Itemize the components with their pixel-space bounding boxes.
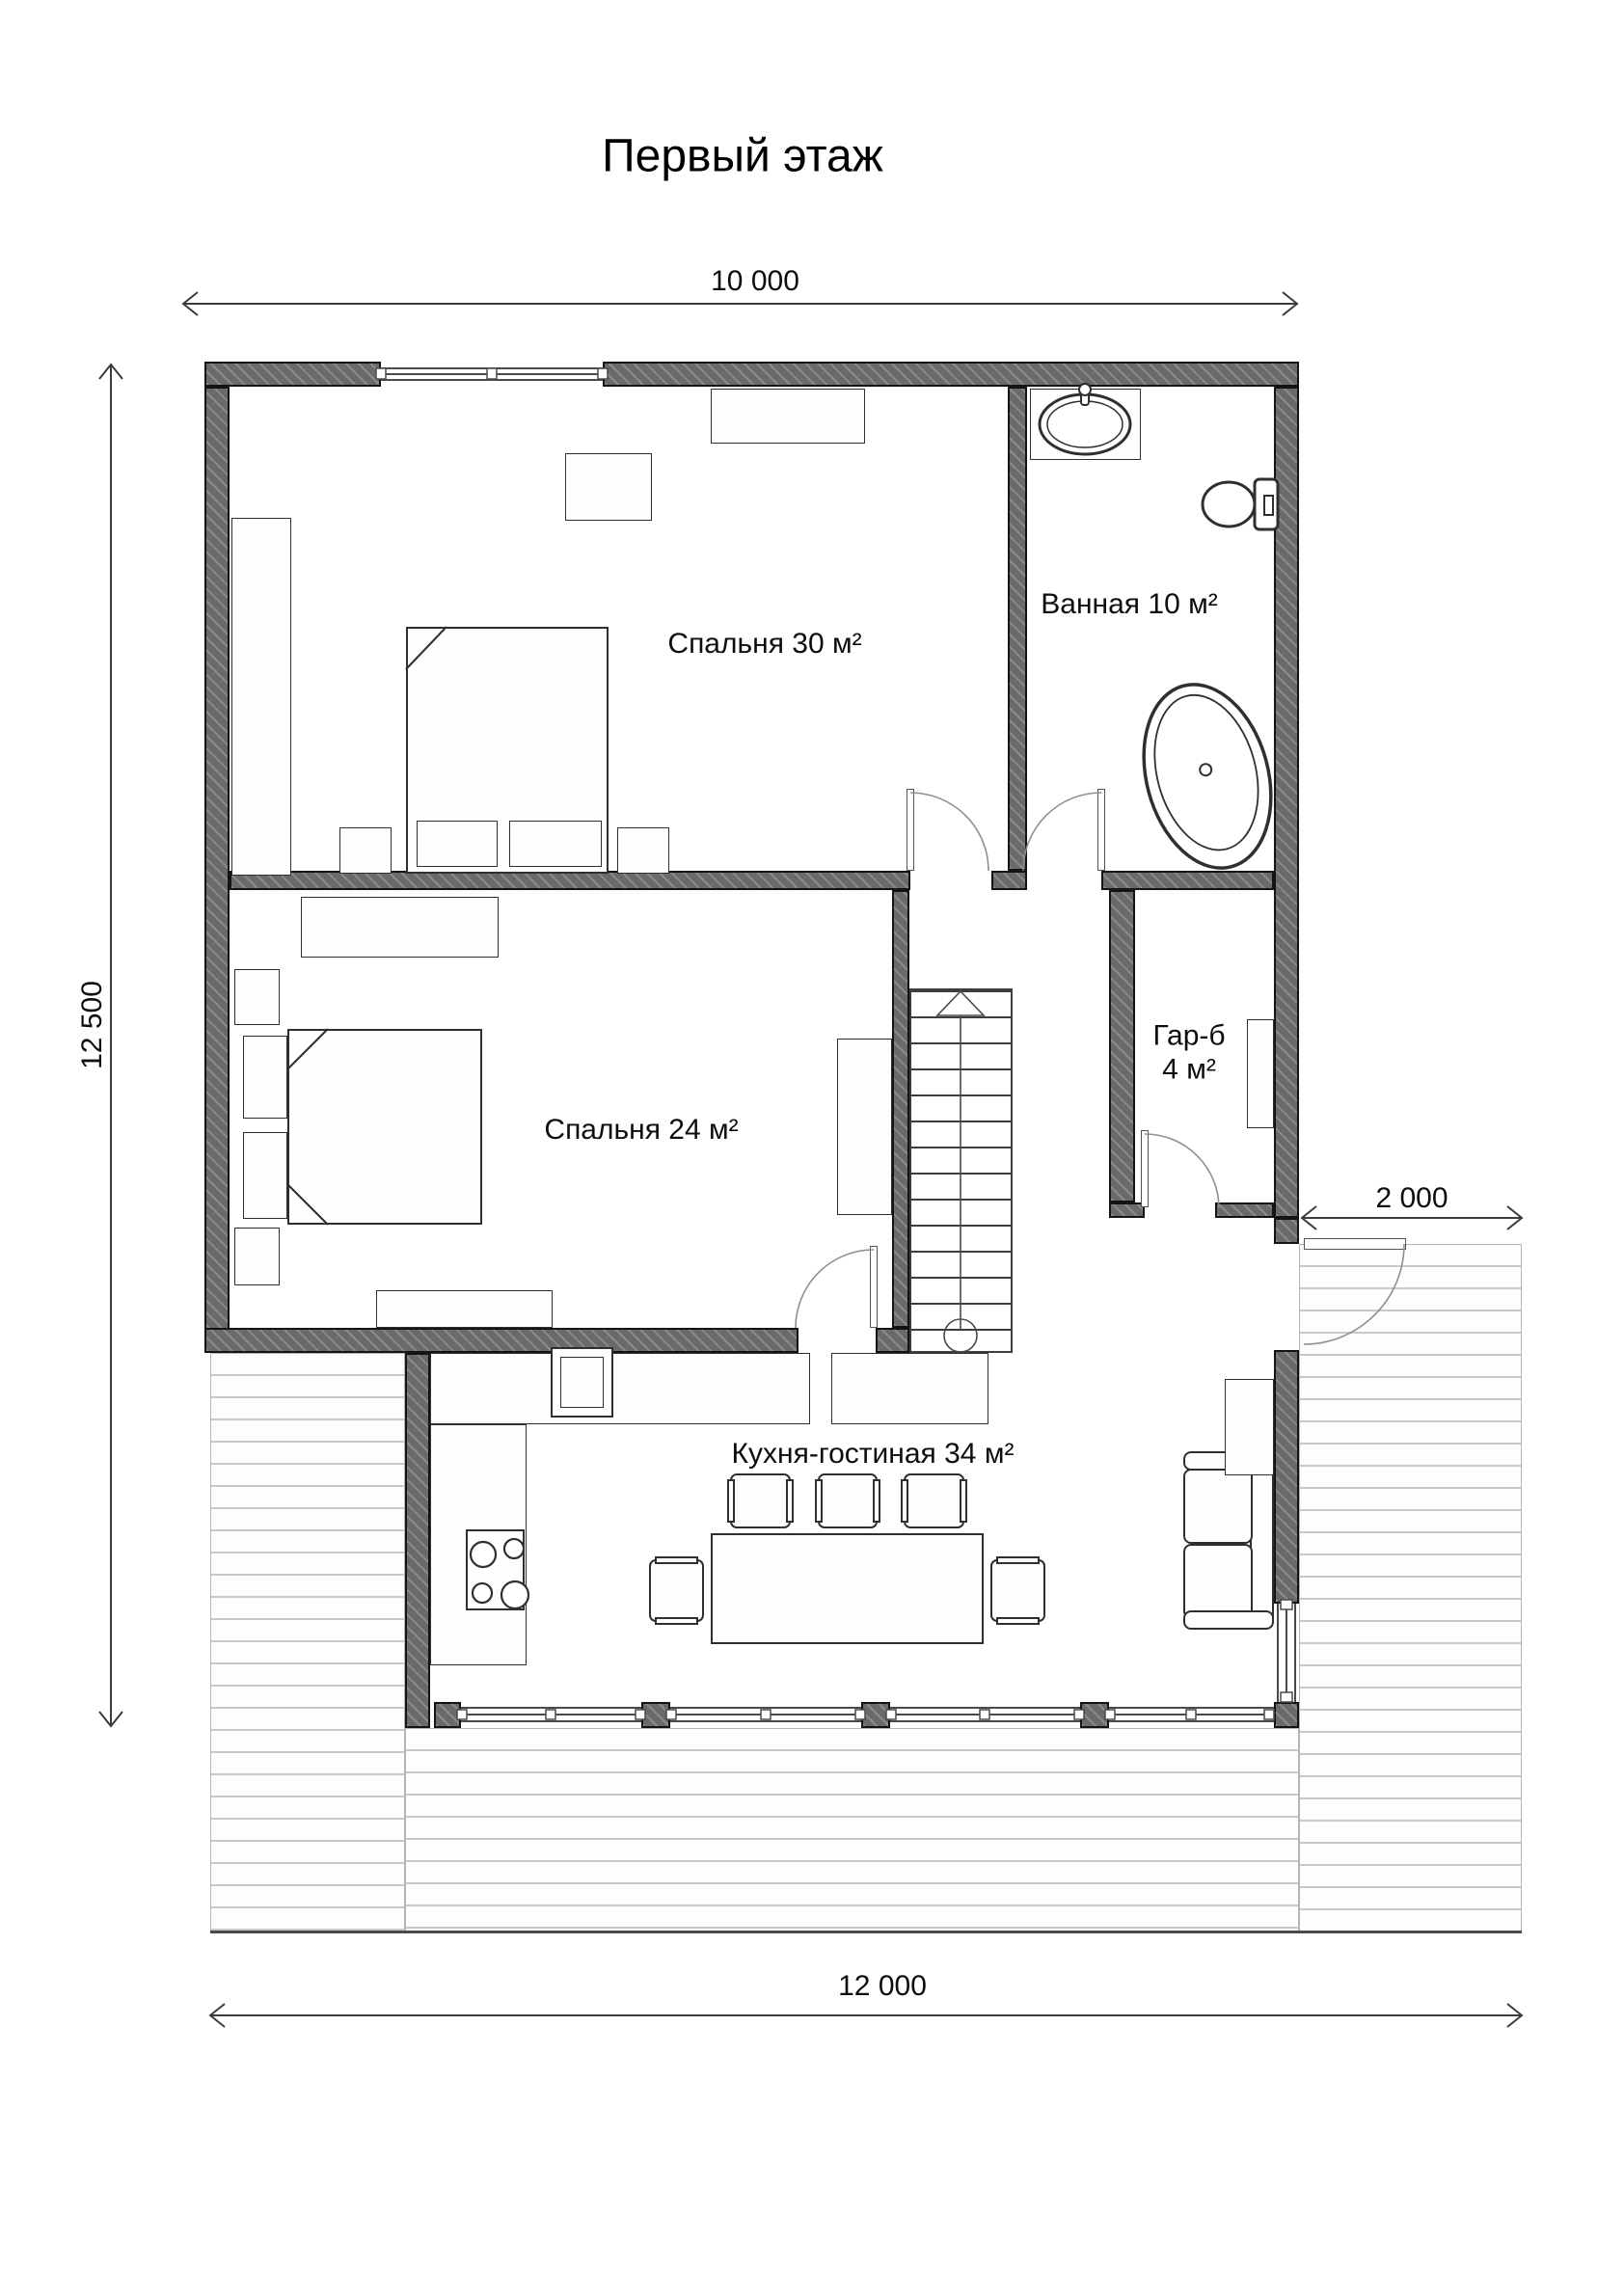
door-leaf-bathroom <box>1097 789 1105 871</box>
arrowhead <box>1302 1206 1316 1229</box>
kitchen-cabinet <box>831 1353 988 1424</box>
post-south-2 <box>641 1702 670 1728</box>
dining-table <box>711 1533 984 1644</box>
door-arc-bedroom30 <box>910 793 988 871</box>
terrace-edge-line <box>210 1931 1522 1933</box>
bathtub-outer <box>1124 670 1290 882</box>
wall-entrance-stub <box>1274 1218 1299 1244</box>
shelf-wardrobe-room <box>1247 1019 1274 1128</box>
sofa-armrest-bottom <box>1183 1610 1274 1630</box>
door-leaf-bedroom24 <box>870 1246 878 1328</box>
kitchen-counter-top <box>430 1353 810 1424</box>
room-label-bathroom: Ванная 10 м² <box>1041 588 1217 621</box>
cabinet-bedroom24-upper <box>234 969 280 1025</box>
wall-top-left-segment <box>204 362 381 387</box>
stove <box>466 1529 525 1610</box>
staircase <box>909 988 1013 1353</box>
door-leaf-wardrobe-room <box>1141 1130 1149 1207</box>
wall-top-right-segment <box>603 362 1299 387</box>
bathtub-drain <box>1199 763 1213 777</box>
window-bedroom30 <box>381 367 603 381</box>
dresser-bedroom24-bottom <box>376 1290 553 1328</box>
room-label-wardrobe-name: Гар-б <box>1152 1020 1225 1054</box>
toilet-bowl-icon <box>1203 482 1255 527</box>
dining-chair-3 <box>904 1473 964 1528</box>
wall-bedroom24-bottom <box>204 1328 798 1353</box>
sink-cabinet-bathroom <box>1030 389 1141 460</box>
dining-chair-2 <box>818 1473 878 1528</box>
window-south-4 <box>1109 1707 1274 1722</box>
wall-bedroom24-right <box>892 890 909 1328</box>
wall-exterior-right <box>1274 387 1299 1218</box>
dimension-label-top: 10 000 <box>711 265 799 298</box>
wall-bathroom-left <box>1008 387 1027 871</box>
window-south-3 <box>890 1707 1080 1722</box>
room-label-bedroom30: Спальня 30 м² <box>667 628 861 661</box>
post-south-4 <box>1080 1702 1109 1728</box>
wall-exterior-left <box>204 387 230 1353</box>
terrace-deck-bottom <box>405 1728 1299 1933</box>
wardrobe-bedroom30 <box>231 518 291 876</box>
pillow-bedroom30-left <box>417 821 498 867</box>
terrace-deck-left <box>210 1353 405 1933</box>
wall-bedroom24-bottom-stub <box>876 1328 909 1353</box>
dresser-bedroom24-top <box>301 897 499 958</box>
dimension-label-right: 2 000 <box>1375 1182 1448 1215</box>
room-label-wardrobe-area: 4 м² <box>1152 1053 1225 1087</box>
arrowhead <box>99 1712 122 1726</box>
pillow-bedroom24-bottom <box>243 1132 287 1219</box>
post-south-1 <box>434 1702 461 1728</box>
window-east <box>1277 1604 1296 1702</box>
nightstand-bedroom30-left <box>339 827 392 874</box>
bathtub-icon <box>1124 670 1290 882</box>
terrace-deck-right <box>1299 1244 1522 1933</box>
dining-chair-1 <box>730 1473 791 1528</box>
page-title: Первый этаж <box>602 130 883 183</box>
wall-wardrobe-bottom-left <box>1109 1202 1145 1218</box>
arrowhead <box>183 292 198 315</box>
arrowhead <box>1507 1206 1522 1229</box>
door-arc-bathroom <box>1023 793 1101 871</box>
bed-bedroom24 <box>287 1029 482 1225</box>
bathtub-inner <box>1138 684 1274 862</box>
tv-stand <box>1225 1379 1274 1475</box>
dining-chair-4 <box>649 1559 704 1622</box>
door-leaf-entrance <box>1304 1238 1406 1250</box>
pillow-bedroom24-top <box>243 1036 287 1119</box>
desk-bedroom24 <box>837 1039 892 1215</box>
door-leaf-bedroom30 <box>907 789 914 871</box>
arrowhead <box>99 365 122 379</box>
window-south-2 <box>670 1707 861 1722</box>
floor-plan-canvas: Первый этаж <box>0 0 1624 2296</box>
room-label-wardrobe: Гар-б 4 м² <box>1152 1020 1225 1087</box>
sofa-seat-2 <box>1183 1544 1253 1619</box>
dimension-label-bottom: 12 000 <box>838 1970 927 2003</box>
desk-bedroom30 <box>565 453 652 521</box>
toilet-tank-button <box>1264 496 1273 515</box>
arrowhead <box>1283 292 1297 315</box>
dimension-label-left: 12 500 <box>76 981 109 1069</box>
kitchen-sink-basin <box>560 1357 604 1408</box>
wall-kitchen-left <box>405 1353 430 1728</box>
sofa-backrest <box>1250 1456 1274 1625</box>
closet-bedroom30 <box>711 389 865 444</box>
nightstand-bedroom30-right <box>617 827 669 874</box>
room-label-kitchen: Кухня-гостиная 34 м² <box>732 1438 1015 1471</box>
room-label-bedroom24: Спальня 24 м² <box>544 1114 738 1147</box>
sofa-seat-1 <box>1183 1469 1253 1544</box>
door-arc-wardrobe-room <box>1145 1134 1219 1208</box>
window-south-1 <box>461 1707 641 1722</box>
door-arc-bedroom24 <box>796 1250 874 1328</box>
wall-hall-stub <box>991 871 1027 890</box>
wall-livingroom-right <box>1274 1350 1299 1604</box>
arrowhead <box>210 2004 225 2027</box>
wall-wardrobe-bottom-right <box>1215 1202 1274 1218</box>
post-south-3 <box>861 1702 890 1728</box>
wall-bedroom30-bottom <box>230 871 910 890</box>
wall-bathroom-bottom <box>1101 871 1274 890</box>
cabinet-bedroom24-lower <box>234 1228 280 1285</box>
dining-chair-5 <box>990 1559 1045 1622</box>
arrowhead <box>1507 2004 1522 2027</box>
pillow-bedroom30-right <box>509 821 602 867</box>
post-corner-southeast <box>1274 1702 1299 1728</box>
wall-wardrobe-left <box>1109 890 1135 1202</box>
